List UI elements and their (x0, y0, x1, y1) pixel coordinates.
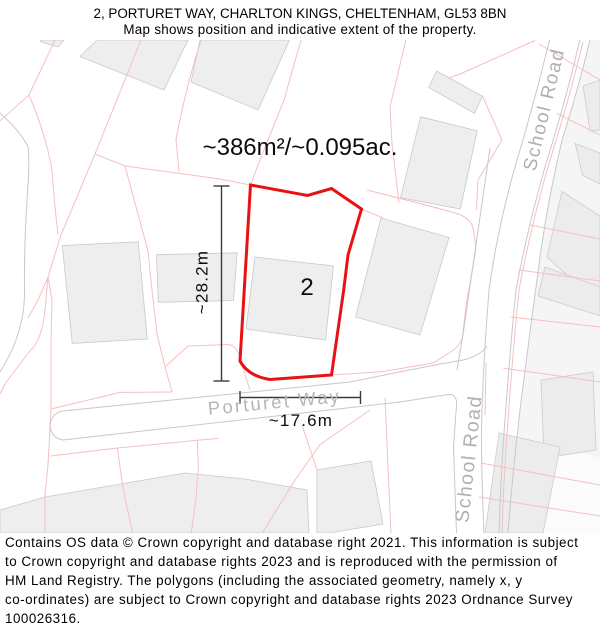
svg-text:2: 2 (300, 274, 313, 301)
svg-text:~17.6m: ~17.6m (269, 411, 333, 430)
svg-text:~386m²/~0.095ac.: ~386m²/~0.095ac. (203, 134, 398, 161)
svg-text:~28.2m: ~28.2m (193, 250, 212, 314)
